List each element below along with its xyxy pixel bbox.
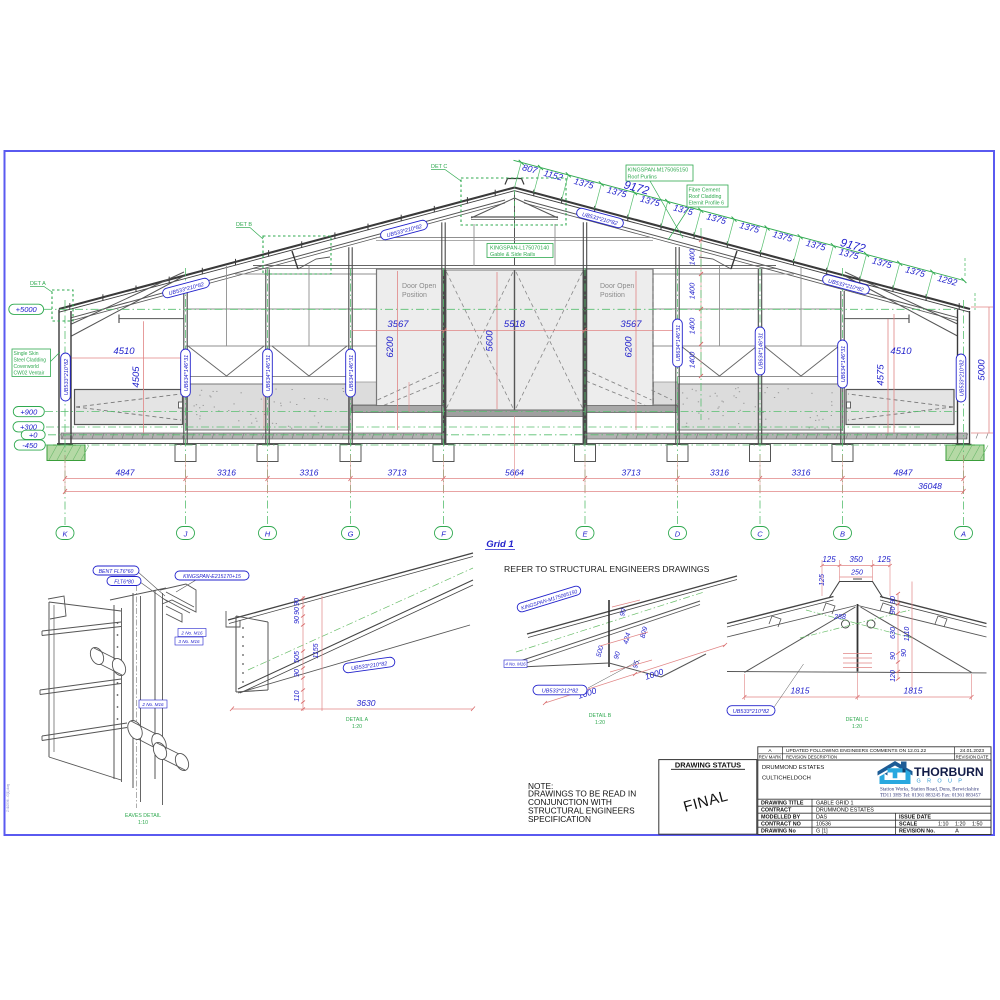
svg-text:Station Works, Station Road, D: Station Works, Station Road, Duns, Berwi… xyxy=(880,788,980,793)
svg-text:DETAIL B: DETAIL B xyxy=(589,713,612,719)
svg-text:THORBURN: THORBURN xyxy=(914,765,984,779)
svg-text:REV MARK: REV MARK xyxy=(759,755,782,760)
svg-text:4575: 4575 xyxy=(876,364,887,386)
svg-text:288: 288 xyxy=(833,614,846,621)
svg-text:Door Open: Door Open xyxy=(402,283,436,290)
svg-text:UB634*146*31: UB634*146*31 xyxy=(759,333,765,369)
svg-text:UB634*146*31: UB634*146*31 xyxy=(676,325,682,361)
svg-text:REVISION DESCRIPTION: REVISION DESCRIPTION xyxy=(786,755,837,760)
svg-text:UB533*210*82: UB533*210*82 xyxy=(64,359,70,395)
svg-text:3316: 3316 xyxy=(300,468,319,478)
svg-text:505: 505 xyxy=(294,651,301,663)
svg-text:1815: 1815 xyxy=(791,686,810,696)
svg-text:A: A xyxy=(960,530,966,539)
svg-text:3567: 3567 xyxy=(387,319,409,330)
svg-text:Roof Cladding: Roof Cladding xyxy=(689,194,722,200)
svg-text:UB634*146*31: UB634*146*31 xyxy=(266,355,272,391)
svg-text:+0: +0 xyxy=(29,430,38,439)
svg-text:3316: 3316 xyxy=(217,468,236,478)
svg-text:1400: 1400 xyxy=(688,248,697,266)
svg-text:G [1]: G [1] xyxy=(816,828,828,834)
svg-text:G: G xyxy=(348,530,354,539)
svg-text:4847: 4847 xyxy=(894,468,913,478)
svg-text:CULTICHELDOCH: CULTICHELDOCH xyxy=(762,776,811,782)
svg-text:+5000: +5000 xyxy=(16,305,38,314)
svg-text:UB533*210*82: UB533*210*82 xyxy=(960,360,966,396)
svg-text:G R O U P: G R O U P xyxy=(917,779,965,785)
svg-text:5000: 5000 xyxy=(977,359,988,381)
svg-text:2 No. M16: 2 No. M16 xyxy=(141,702,164,707)
svg-text:TD11 3HS Tel: 01361 883245: TD11 3HS Tel: 01361 883245 Fax: 01361 88… xyxy=(880,794,981,799)
svg-text:4510: 4510 xyxy=(113,346,135,357)
svg-text:CONTRACT: CONTRACT xyxy=(761,807,792,813)
svg-text:1:10: 1:10 xyxy=(138,820,148,826)
svg-text:KINGSPAN-E215170+15: KINGSPAN-E215170+15 xyxy=(183,574,241,580)
svg-text:UPDATED FOLLOWING ENGINEERS CO: UPDATED FOLLOWING ENGINEERS COMMENTS ON … xyxy=(786,748,926,754)
svg-text:4505: 4505 xyxy=(131,366,142,388)
svg-text:CW02 Ventair: CW02 Ventair xyxy=(14,371,45,377)
svg-text:DET B: DET B xyxy=(236,222,252,228)
svg-text:1:10: 1:10 xyxy=(938,821,949,827)
svg-text:BENT FLT6*60: BENT FLT6*60 xyxy=(99,569,134,575)
svg-text:3630: 3630 xyxy=(357,698,376,708)
svg-text:4510: 4510 xyxy=(890,346,912,357)
svg-text:UB533*212*82: UB533*212*82 xyxy=(542,689,578,695)
svg-text:EAVES DETAIL: EAVES DETAIL xyxy=(125,813,161,819)
svg-text:90: 90 xyxy=(890,607,897,615)
svg-text:Fibre Cement: Fibre Cement xyxy=(689,188,721,194)
svg-text:36048: 36048 xyxy=(918,481,942,491)
svg-text:REVISION DATE: REVISION DATE xyxy=(956,755,989,760)
svg-text:90: 90 xyxy=(294,598,301,606)
svg-text:630: 630 xyxy=(890,627,897,639)
svg-text:KINGSPAN-M175065150: KINGSPAN-M175065150 xyxy=(628,168,689,174)
svg-text:Single Skin: Single Skin xyxy=(14,351,39,357)
svg-text:REFER TO STRUCTURAL ENGINEERS: REFER TO STRUCTURAL ENGINEERS DRAWINGS xyxy=(504,564,710,574)
svg-text:125: 125 xyxy=(822,555,836,564)
svg-text:4847: 4847 xyxy=(116,468,135,478)
svg-text:Coverworld: Coverworld xyxy=(14,364,40,370)
svg-text:B: B xyxy=(840,530,845,539)
svg-text:24.01.2023: 24.01.2023 xyxy=(960,748,984,754)
svg-text:120: 120 xyxy=(890,670,897,682)
svg-text:REVISION No.: REVISION No. xyxy=(899,828,935,834)
svg-text:90: 90 xyxy=(901,649,908,657)
svg-text:Eternit Profile 6: Eternit Profile 6 xyxy=(689,201,725,207)
svg-text:UB533*210*82: UB533*210*82 xyxy=(733,709,769,715)
svg-text:Roof Purlins: Roof Purlins xyxy=(628,175,658,181)
svg-text:3316: 3316 xyxy=(710,468,729,478)
svg-text:1815: 1815 xyxy=(904,686,923,696)
svg-text:DETAIL C: DETAIL C xyxy=(846,717,869,723)
svg-text:UB634*146*31: UB634*146*31 xyxy=(349,355,355,391)
svg-text:5600: 5600 xyxy=(485,330,496,352)
svg-text:-450: -450 xyxy=(22,441,38,450)
svg-text:Door Open: Door Open xyxy=(600,283,634,290)
svg-text:1155: 1155 xyxy=(313,643,320,658)
svg-text:4 No. M16: 4 No. M16 xyxy=(505,662,526,667)
svg-text:Steel Cladding: Steel Cladding xyxy=(14,358,47,364)
svg-text:DRAWING STATUS: DRAWING STATUS xyxy=(675,760,741,769)
svg-text:3 No. M16: 3 No. M16 xyxy=(178,639,200,644)
svg-text:GABLE GRID 1: GABLE GRID 1 xyxy=(816,800,853,806)
svg-text:C: C xyxy=(757,530,763,539)
svg-text:3316: 3316 xyxy=(792,468,811,478)
svg-text:1:20: 1:20 xyxy=(955,821,966,827)
svg-text:UB634*146*31: UB634*146*31 xyxy=(841,346,847,382)
svg-text:MODELLED BY: MODELLED BY xyxy=(761,814,801,820)
svg-text:SCALE: SCALE xyxy=(899,821,918,827)
svg-text:1:20: 1:20 xyxy=(595,720,605,726)
svg-text:Grid 1: Grid 1 xyxy=(486,539,513,550)
svg-text:6200: 6200 xyxy=(624,336,635,358)
svg-text:3713: 3713 xyxy=(622,468,641,478)
svg-text:1110: 1110 xyxy=(904,627,911,642)
svg-text:125: 125 xyxy=(877,555,891,564)
svg-text:90: 90 xyxy=(294,607,301,615)
svg-text:1:50: 1:50 xyxy=(972,821,983,827)
svg-text:A: A xyxy=(955,828,959,834)
svg-text:D: D xyxy=(675,530,681,539)
svg-text:90: 90 xyxy=(890,596,897,604)
svg-text:350: 350 xyxy=(849,555,863,564)
svg-text:Position: Position xyxy=(402,292,427,299)
svg-text:125: 125 xyxy=(819,574,826,586)
svg-text:1400: 1400 xyxy=(688,282,697,300)
svg-text:Gable & Side Rails: Gable & Side Rails xyxy=(490,252,536,258)
svg-text:5518: 5518 xyxy=(504,319,526,330)
svg-text:250: 250 xyxy=(850,570,863,577)
svg-text:DETAIL A: DETAIL A xyxy=(346,717,369,723)
svg-text:90: 90 xyxy=(294,616,301,624)
svg-text:10536: 10536 xyxy=(816,821,831,827)
svg-text:DRUMMOND ESTATES: DRUMMOND ESTATES xyxy=(762,765,824,771)
svg-text:J: J xyxy=(183,530,188,539)
svg-text:1:20: 1:20 xyxy=(352,724,362,730)
svg-text:DRAWING TITLE: DRAWING TITLE xyxy=(761,800,804,806)
svg-text:DRUMMOND ESTATES: DRUMMOND ESTATES xyxy=(816,807,874,813)
svg-text:H: H xyxy=(265,530,271,539)
svg-text:FLT6*80: FLT6*80 xyxy=(114,580,134,586)
svg-text:6200: 6200 xyxy=(385,336,396,358)
svg-text:Z:\10536 - G[1].dwg: Z:\10536 - G[1].dwg xyxy=(6,784,10,812)
svg-text:90: 90 xyxy=(294,669,301,677)
svg-text:1400: 1400 xyxy=(688,317,697,335)
svg-text:ISSUE DATE: ISSUE DATE xyxy=(899,814,931,820)
svg-text:3567: 3567 xyxy=(620,319,642,330)
svg-text:3713: 3713 xyxy=(388,468,407,478)
svg-text:DET C: DET C xyxy=(431,164,447,170)
svg-text:90: 90 xyxy=(890,652,897,660)
svg-text:DET A: DET A xyxy=(30,281,46,287)
svg-text:110: 110 xyxy=(294,690,301,701)
svg-text:2 No. M16: 2 No. M16 xyxy=(180,631,203,636)
svg-text:DRAWING No: DRAWING No xyxy=(761,828,796,834)
svg-text:DAS: DAS xyxy=(816,814,827,820)
svg-text:1:20: 1:20 xyxy=(852,724,862,730)
svg-text:SPECIFICATION: SPECIFICATION xyxy=(528,814,591,824)
svg-text:CONTRACT NO: CONTRACT NO xyxy=(761,821,801,827)
svg-text:KINGSPAN-L175070140: KINGSPAN-L175070140 xyxy=(490,246,549,252)
svg-text:Position: Position xyxy=(600,292,625,299)
svg-text:UB634*146*31: UB634*146*31 xyxy=(184,355,190,391)
svg-text:+900: +900 xyxy=(20,407,38,416)
svg-text:F: F xyxy=(441,530,446,539)
svg-text:1400: 1400 xyxy=(688,351,697,369)
